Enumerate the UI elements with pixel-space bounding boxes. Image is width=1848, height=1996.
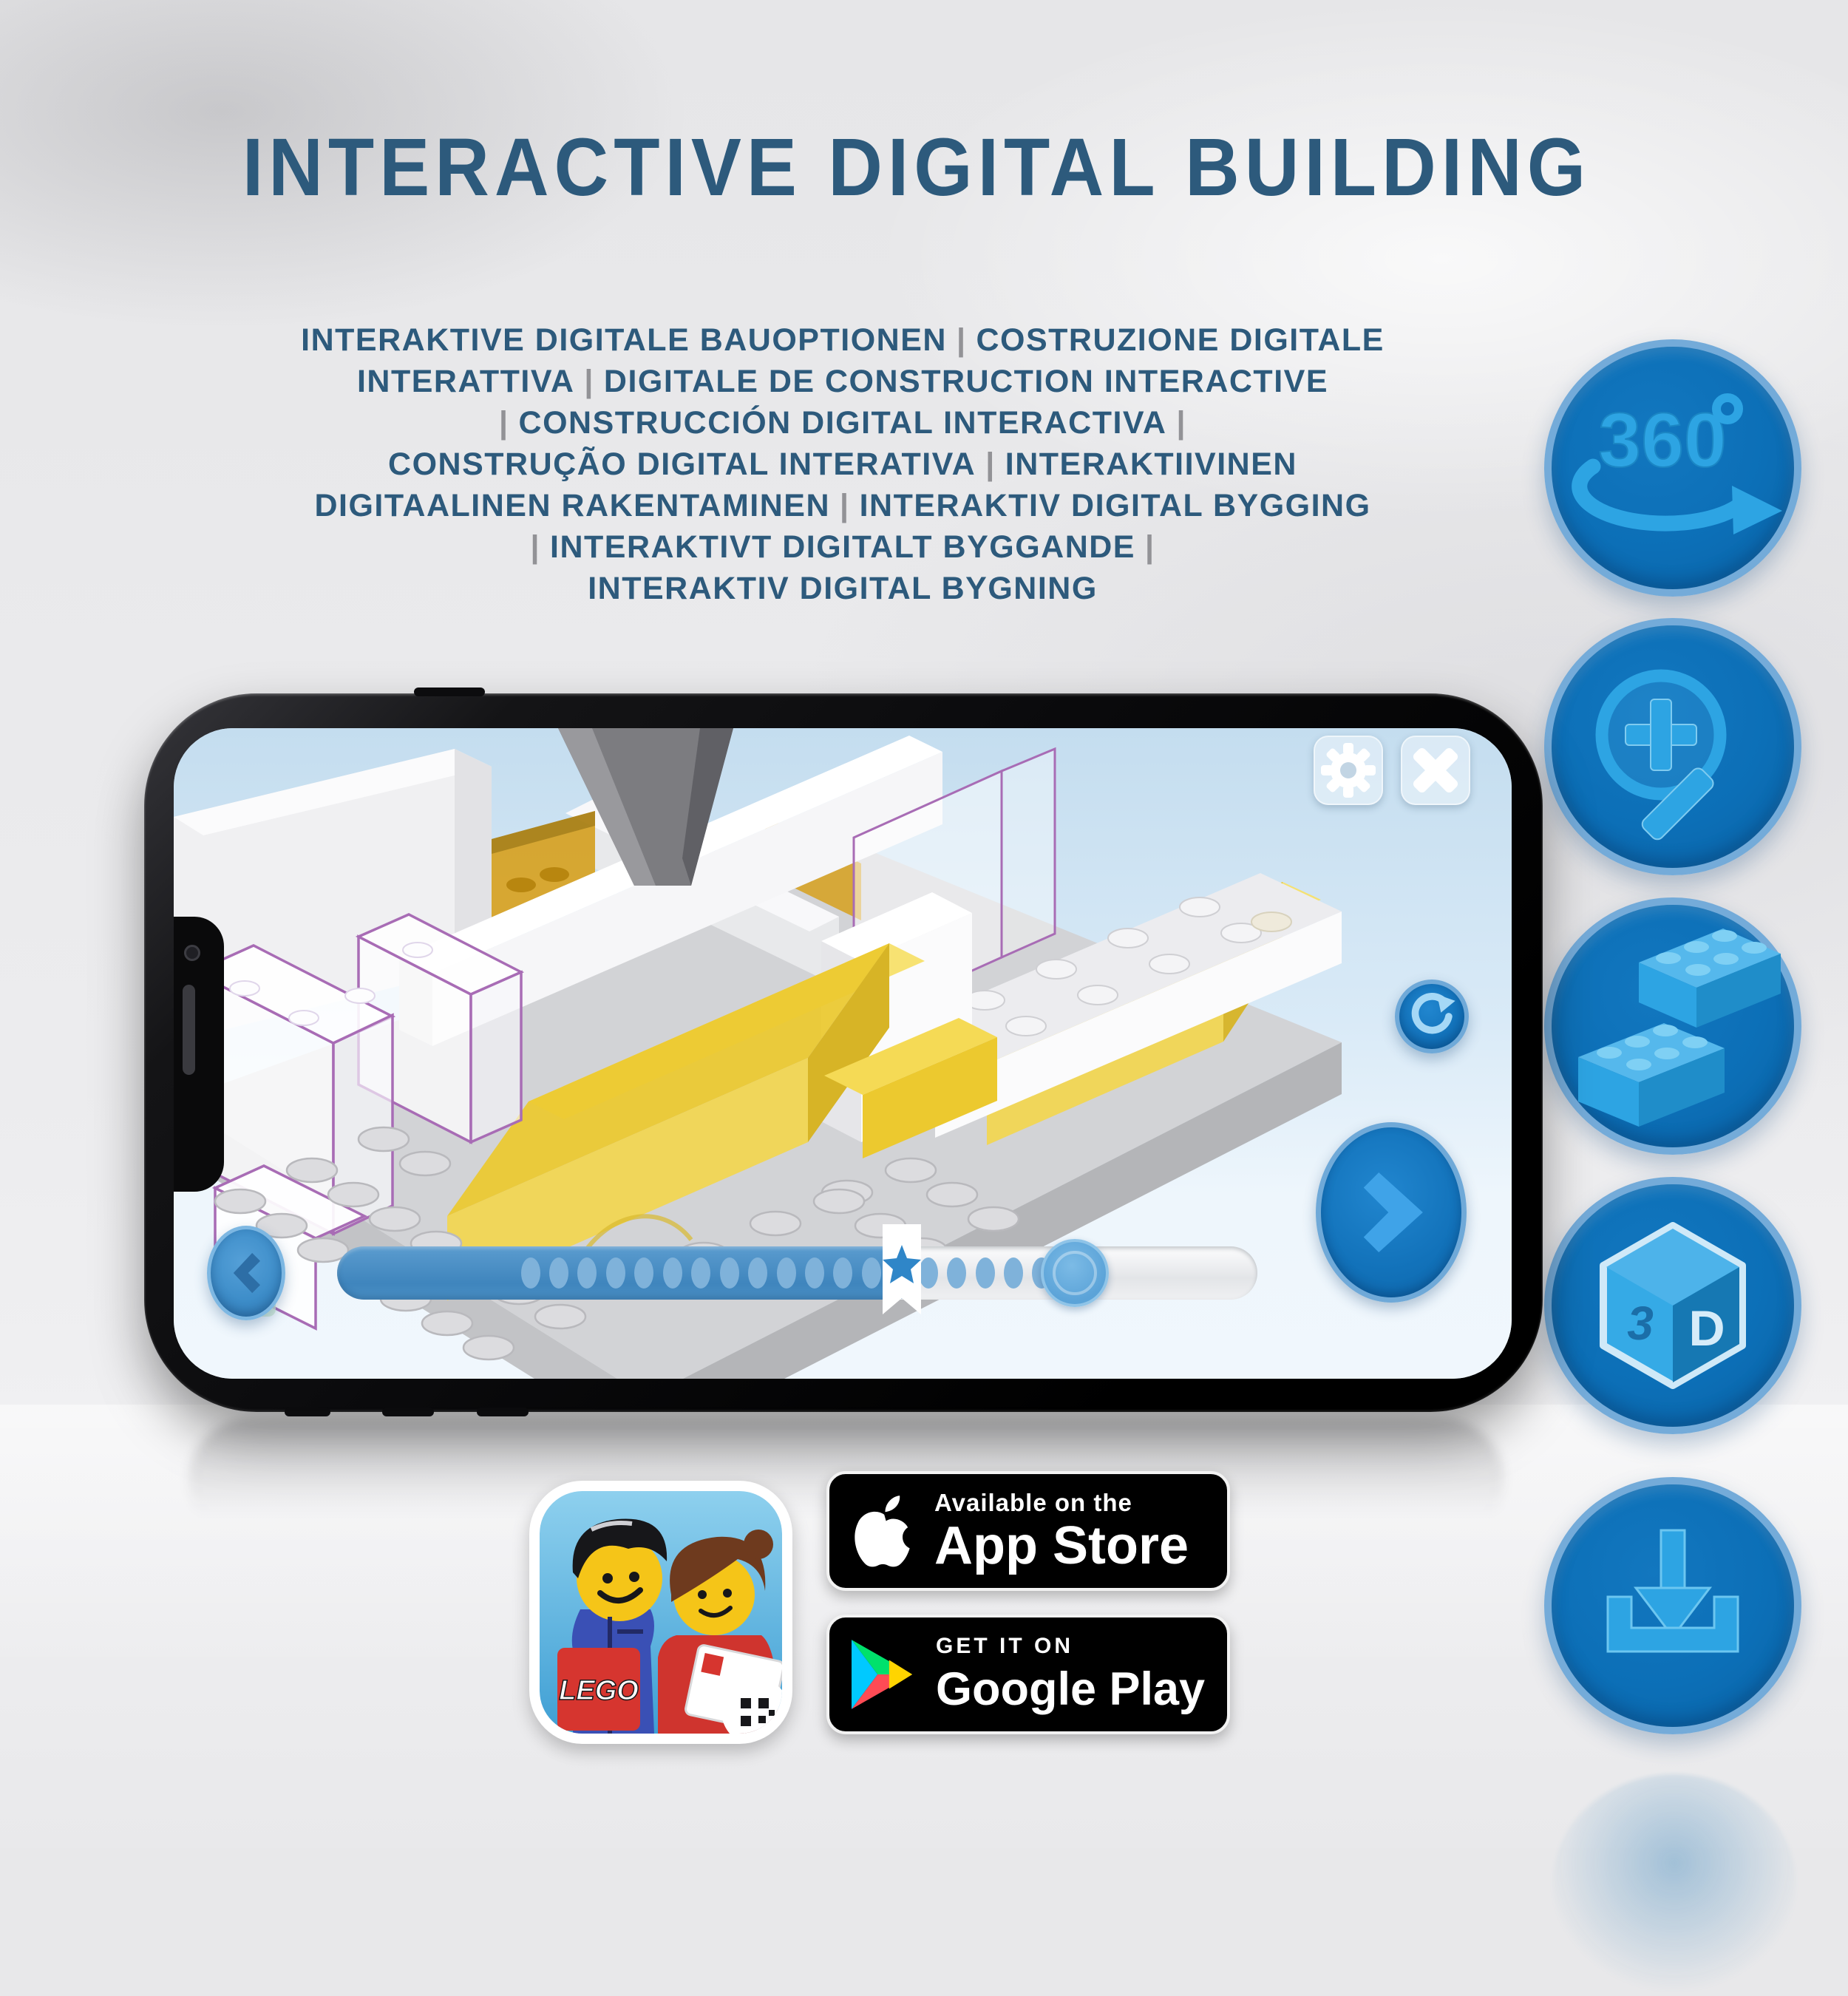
close-x-icon xyxy=(1402,737,1469,804)
subtitle: INTERAKTIVE DIGITALE BAUOPTIONEN|COSTRUZ… xyxy=(185,319,1501,609)
svg-text:D: D xyxy=(1688,1300,1725,1357)
svg-text:3: 3 xyxy=(1627,1297,1654,1350)
page: { "header": { "title": "INTERACTIVE DIGI… xyxy=(0,0,1848,1848)
settings-button[interactable] xyxy=(1314,736,1383,805)
360-rotation-icon: 360 xyxy=(1552,347,1794,589)
google-play-badge[interactable]: GET IT ON Google Play xyxy=(826,1615,1230,1734)
lego-app-icon[interactable]: LEGO xyxy=(529,1481,792,1744)
app-store-label: App Store xyxy=(934,1518,1189,1574)
rotate-view-button[interactable] xyxy=(1395,980,1469,1053)
phone-volume-down-button xyxy=(477,1408,529,1416)
next-chevron-icon xyxy=(1321,1127,1461,1297)
app-screen xyxy=(174,728,1512,1379)
settings-gear-icon xyxy=(1315,737,1382,804)
phone-notch xyxy=(174,917,224,1192)
lego-app-artwork: LEGO xyxy=(540,1491,782,1734)
build-progress-bar[interactable] xyxy=(337,1246,1257,1300)
phone-device xyxy=(144,693,1543,1412)
magnifier-zoom-icon xyxy=(1552,625,1794,868)
svg-text:360: 360 xyxy=(1598,398,1727,483)
next-step-button[interactable] xyxy=(1316,1122,1467,1303)
app-store-badge[interactable]: Available on the App Store xyxy=(826,1471,1230,1591)
feature-download-badge xyxy=(1544,1477,1801,1734)
star-bookmark-marker[interactable] xyxy=(883,1224,921,1319)
app-store-tagline: Available on the xyxy=(934,1488,1189,1518)
phone-volume-up-button xyxy=(382,1408,434,1416)
lego-logo: LEGO xyxy=(557,1648,640,1731)
feature-bricks-badge xyxy=(1544,897,1801,1155)
google-play-logo-icon xyxy=(852,1638,917,1711)
progress-slider-handle[interactable] xyxy=(1041,1239,1109,1307)
circle-reflection xyxy=(1552,1774,1796,1996)
phone-mute-switch xyxy=(285,1408,330,1416)
lego-bricks-icon xyxy=(1552,905,1794,1147)
feature-3d-badge: 3 D xyxy=(1544,1177,1801,1434)
download-icon xyxy=(1552,1484,1794,1727)
google-play-tagline: GET IT ON xyxy=(936,1632,1205,1661)
phone-power-button xyxy=(414,688,485,696)
google-play-label: Google Play xyxy=(936,1661,1205,1717)
rotate-arrow-icon xyxy=(1399,984,1464,1049)
svg-text:LEGO: LEGO xyxy=(559,1675,639,1706)
close-button[interactable] xyxy=(1401,736,1470,805)
previous-chevron-icon xyxy=(211,1229,282,1317)
apple-logo-icon xyxy=(852,1493,915,1569)
progress-step-dots xyxy=(337,1246,1257,1300)
feature-360-rotation-badge: 360 xyxy=(1544,339,1801,597)
earpiece-speaker xyxy=(183,985,195,1075)
front-camera xyxy=(184,945,200,961)
page-title: INTERACTIVE DIGITAL BUILDING xyxy=(103,120,1730,214)
3d-cube-icon: 3 D xyxy=(1552,1184,1794,1427)
previous-step-button[interactable] xyxy=(207,1226,285,1320)
feature-zoom-badge xyxy=(1544,618,1801,875)
